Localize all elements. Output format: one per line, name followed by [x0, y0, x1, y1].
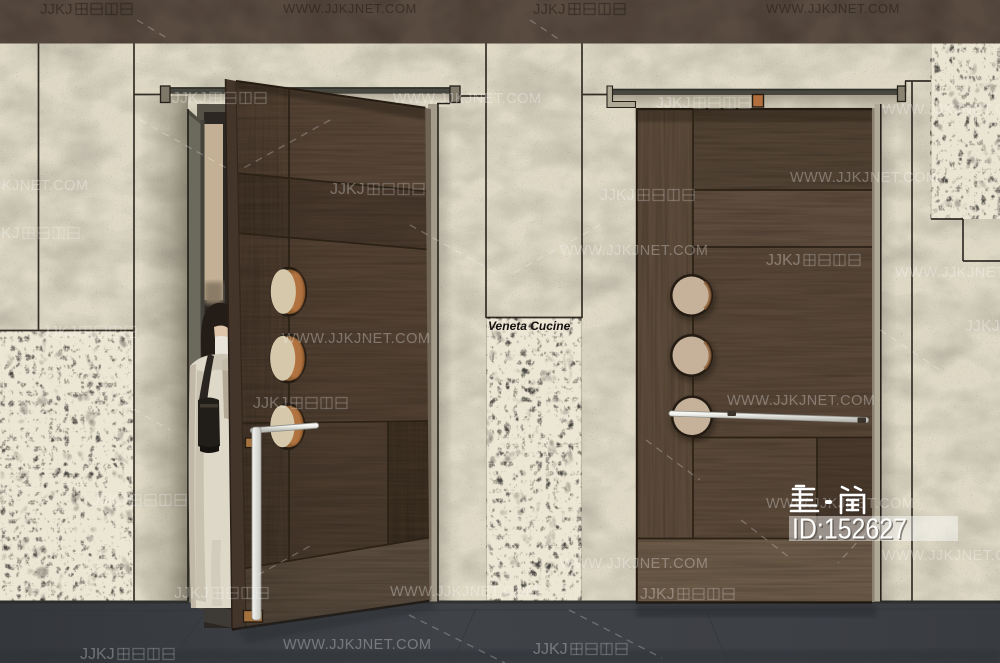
svg-text:JJKJ: JJKJ: [533, 641, 568, 658]
svg-text:JJKJ: JJKJ: [965, 318, 1000, 335]
svg-text:WWW.JJKJNET.COM: WWW.JJKJNET.COM: [882, 102, 1000, 118]
svg-text:WWW.JJKJNET.COM: WWW.JJKJNET.COM: [766, 1, 900, 16]
svg-text:JJKJ: JJKJ: [174, 585, 209, 602]
svg-text:WWW.JJKJNET.COM: WWW.JJKJNET.COM: [0, 178, 88, 194]
svg-text:WWW.JJKJNET.COM: WWW.JJKJNET.COM: [393, 91, 541, 107]
svg-text:WWW.JJKJNET.COM: WWW.JJKJNET.COM: [882, 548, 1000, 564]
svg-text:JJKJ: JJKJ: [0, 225, 20, 242]
svg-text:JJKJ: JJKJ: [172, 90, 207, 107]
svg-text:WWW.JJKJNET.COM: WWW.JJKJNET.COM: [790, 170, 938, 186]
svg-text:Veneta Cucine: Veneta Cucine: [488, 319, 571, 333]
svg-text:JJKJ: JJKJ: [600, 187, 635, 204]
svg-text:JJKJ: JJKJ: [80, 646, 115, 663]
svg-text:WWW.JJKJNET.COM: WWW.JJKJNET.COM: [283, 1, 417, 16]
svg-text:ID:152627: ID:152627: [792, 514, 907, 546]
svg-text:JJKJ: JJKJ: [766, 252, 801, 269]
svg-text:JJKJ: JJKJ: [640, 586, 675, 603]
svg-text:JJKJ: JJKJ: [40, 1, 73, 18]
svg-text:JJKJ: JJKJ: [42, 324, 77, 341]
svg-text:WWW.JJKJNET.COM: WWW.JJKJNET.COM: [727, 393, 875, 409]
svg-text:WWW.JJKJNET.COM: WWW.JJKJNET.COM: [282, 331, 430, 347]
svg-text:JJKJ: JJKJ: [92, 492, 127, 509]
svg-text:WWW.JJKJNET.COM: WWW.JJKJNET.COM: [560, 556, 708, 572]
svg-text:WWW.JJKJNET.COM: WWW.JJKJNET.COM: [390, 584, 538, 600]
svg-text:JJKJ: JJKJ: [330, 181, 365, 198]
svg-text:WWW.JJKJNET.COM: WWW.JJKJNET.COM: [895, 265, 1000, 281]
svg-text:JJKJ: JJKJ: [656, 95, 691, 112]
svg-text:JJKJ: JJKJ: [533, 1, 566, 18]
svg-text:WWW.JJKJNET.COM: WWW.JJKJNET.COM: [283, 637, 431, 653]
svg-text:WWW.JJKJNET.COM: WWW.JJKJNET.COM: [560, 243, 708, 259]
svg-text:JJKJ: JJKJ: [253, 395, 288, 412]
